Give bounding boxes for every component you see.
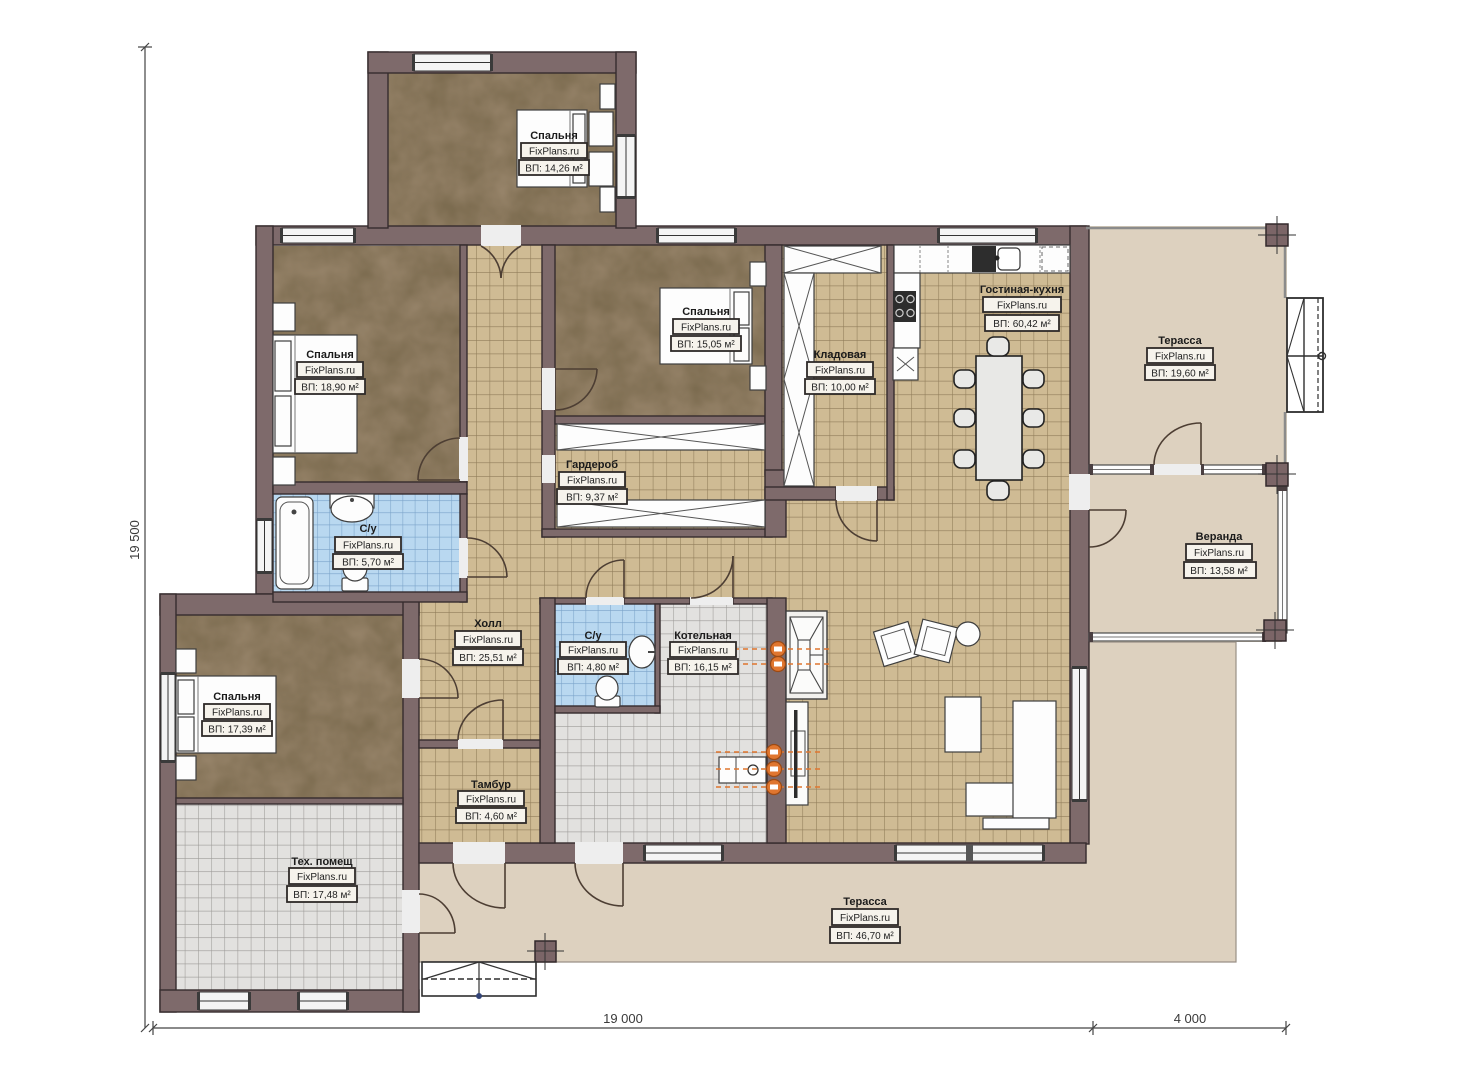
svg-text:Веранда: Веранда [1196,531,1244,543]
svg-text:ВП: 4,60 м²: ВП: 4,60 м² [465,812,518,823]
svg-text:С/у: С/у [584,630,602,642]
svg-text:ВП: 13,58 м²: ВП: 13,58 м² [1190,566,1248,577]
svg-text:FixPlans.ru: FixPlans.ru [678,646,728,657]
svg-text:ВП: 15,05 м²: ВП: 15,05 м² [677,340,735,351]
svg-text:ВП: 19,60 м²: ВП: 19,60 м² [1151,369,1209,380]
svg-text:Спальня: Спальня [306,349,354,361]
svg-text:FixPlans.ru: FixPlans.ru [840,913,890,924]
svg-text:Кладовая: Кладовая [814,349,867,361]
svg-text:19 500: 19 500 [127,520,142,560]
svg-text:ВП: 46,70 м²: ВП: 46,70 м² [836,931,894,942]
svg-text:19 000: 19 000 [603,1011,643,1026]
svg-text:ВП: 5,70 м²: ВП: 5,70 м² [342,558,395,569]
svg-text:Терасса: Терасса [843,896,887,908]
svg-text:FixPlans.ru: FixPlans.ru [343,541,393,552]
svg-text:FixPlans.ru: FixPlans.ru [297,872,347,883]
svg-text:FixPlans.ru: FixPlans.ru [529,147,579,158]
svg-text:Тамбур: Тамбур [471,779,511,791]
svg-text:Спальня: Спальня [530,130,578,142]
svg-text:Холл: Холл [474,618,502,630]
svg-text:С/у: С/у [359,523,377,535]
svg-text:ВП: 60,42 м²: ВП: 60,42 м² [993,319,1051,330]
svg-text:Спальня: Спальня [682,306,730,318]
svg-text:FixPlans.ru: FixPlans.ru [568,646,618,657]
svg-text:FixPlans.ru: FixPlans.ru [466,795,516,806]
svg-text:FixPlans.ru: FixPlans.ru [681,323,731,334]
svg-text:ВП: 17,39 м²: ВП: 17,39 м² [208,725,266,736]
svg-text:FixPlans.ru: FixPlans.ru [305,366,355,377]
svg-text:ВП: 9,37 м²: ВП: 9,37 м² [566,493,619,504]
svg-text:FixPlans.ru: FixPlans.ru [1155,352,1205,363]
svg-text:ВП: 17,48 м²: ВП: 17,48 м² [293,890,351,901]
svg-text:Терасса: Терасса [1158,335,1202,347]
svg-text:ВП: 14,26 м²: ВП: 14,26 м² [525,164,583,175]
svg-text:ВП: 16,15 м²: ВП: 16,15 м² [674,663,732,674]
svg-text:ВП: 4,80 м²: ВП: 4,80 м² [567,663,620,674]
svg-text:Тех. помещ: Тех. помещ [291,856,353,868]
svg-text:FixPlans.ru: FixPlans.ru [212,708,262,719]
svg-text:FixPlans.ru: FixPlans.ru [567,476,617,487]
svg-text:Котельная: Котельная [674,630,732,642]
svg-text:Гостиная-кухня: Гостиная-кухня [980,284,1064,296]
svg-text:FixPlans.ru: FixPlans.ru [1194,548,1244,559]
svg-text:FixPlans.ru: FixPlans.ru [463,635,513,646]
svg-text:FixPlans.ru: FixPlans.ru [815,366,865,377]
svg-text:FixPlans.ru: FixPlans.ru [997,301,1047,312]
svg-text:ВП: 10,00 м²: ВП: 10,00 м² [811,383,869,394]
svg-text:4 000: 4 000 [1174,1011,1207,1026]
svg-text:ВП: 25,51 м²: ВП: 25,51 м² [459,653,517,664]
svg-text:Гардероб: Гардероб [566,459,618,471]
svg-text:Спальня: Спальня [213,691,261,703]
svg-text:ВП: 18,90 м²: ВП: 18,90 м² [301,383,359,394]
